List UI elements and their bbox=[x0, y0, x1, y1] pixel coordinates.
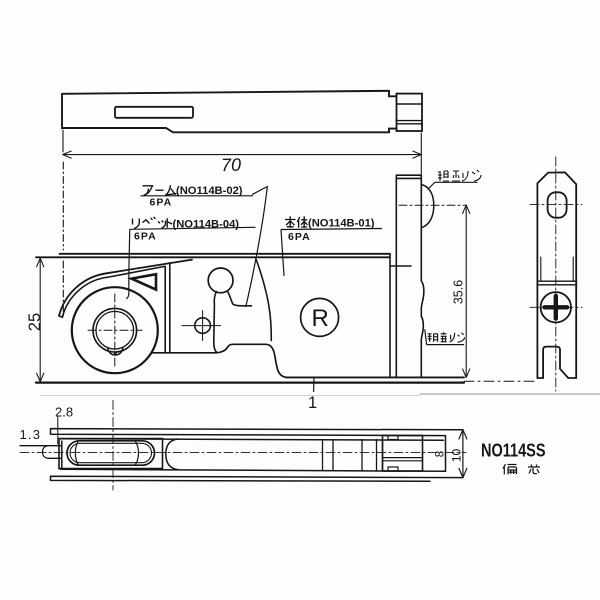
svg-text:R: R bbox=[312, 305, 329, 332]
svg-text:35.6: 35.6 bbox=[451, 280, 465, 304]
svg-text:25: 25 bbox=[26, 313, 44, 331]
svg-text:6PA: 6PA bbox=[288, 231, 311, 243]
svg-text:1.3: 1.3 bbox=[20, 427, 42, 442]
svg-text:NO114SS: NO114SS bbox=[481, 440, 546, 461]
svg-text:70: 70 bbox=[221, 155, 242, 176]
svg-text:8: 8 bbox=[435, 451, 447, 457]
svg-text:2.8: 2.8 bbox=[55, 405, 73, 420]
svg-text:(NO114B-01): (NO114B-01) bbox=[308, 218, 375, 230]
svg-text:1: 1 bbox=[308, 394, 317, 412]
svg-text:10: 10 bbox=[450, 449, 464, 463]
svg-text:6PA: 6PA bbox=[134, 231, 157, 243]
svg-text:6PA: 6PA bbox=[150, 197, 173, 209]
